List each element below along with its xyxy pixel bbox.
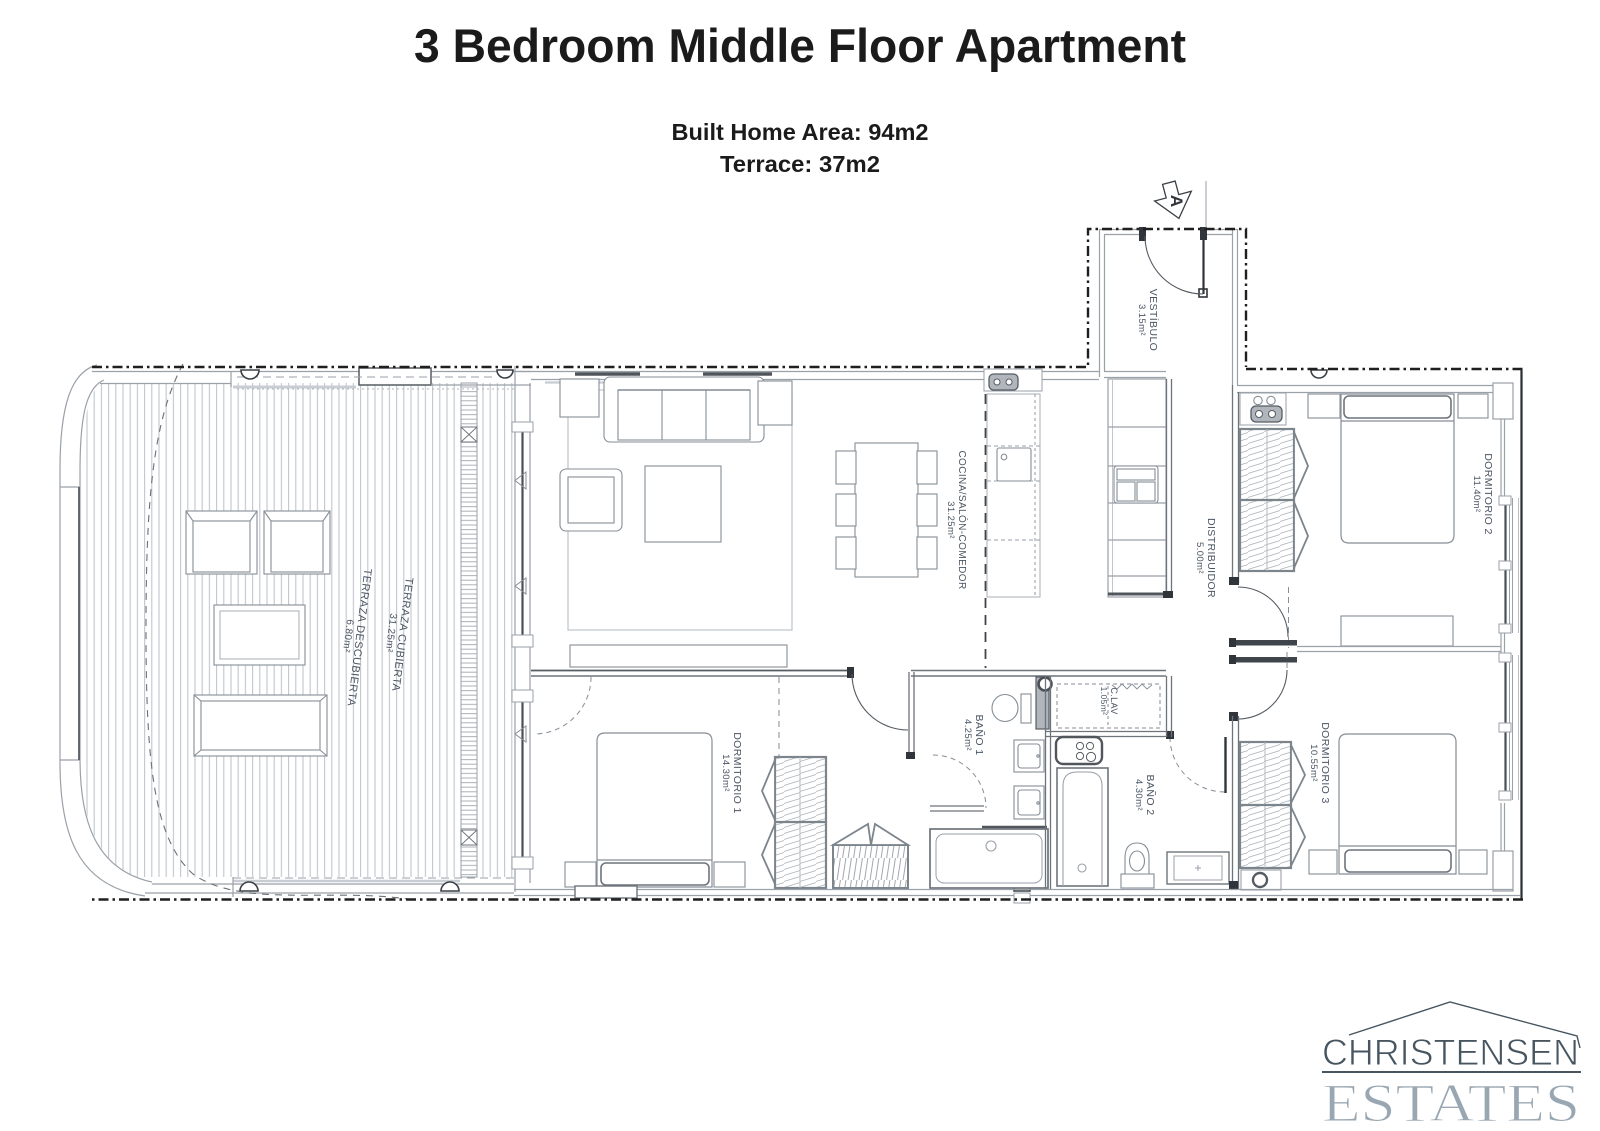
- svg-text:Terrace: 37m2: Terrace: 37m2: [720, 151, 880, 177]
- svg-text:BAÑO 14.25m²: BAÑO 14.25m²: [962, 715, 986, 756]
- svg-text:Built Home Area: 94m2: Built Home Area: 94m2: [672, 119, 929, 145]
- svg-text:ESTATES: ESTATES: [1322, 1073, 1580, 1131]
- svg-text:3 Bedroom Middle Floor Apartme: 3 Bedroom Middle Floor Apartment: [414, 19, 1186, 72]
- svg-text:A: A: [1167, 195, 1186, 207]
- svg-text:CHRISTENSEN: CHRISTENSEN: [1322, 1032, 1579, 1073]
- svg-text:BAÑO 24.30m²: BAÑO 24.30m²: [1133, 775, 1157, 816]
- svg-text:C.LAV1.05m²: C.LAV1.05m²: [1099, 687, 1119, 716]
